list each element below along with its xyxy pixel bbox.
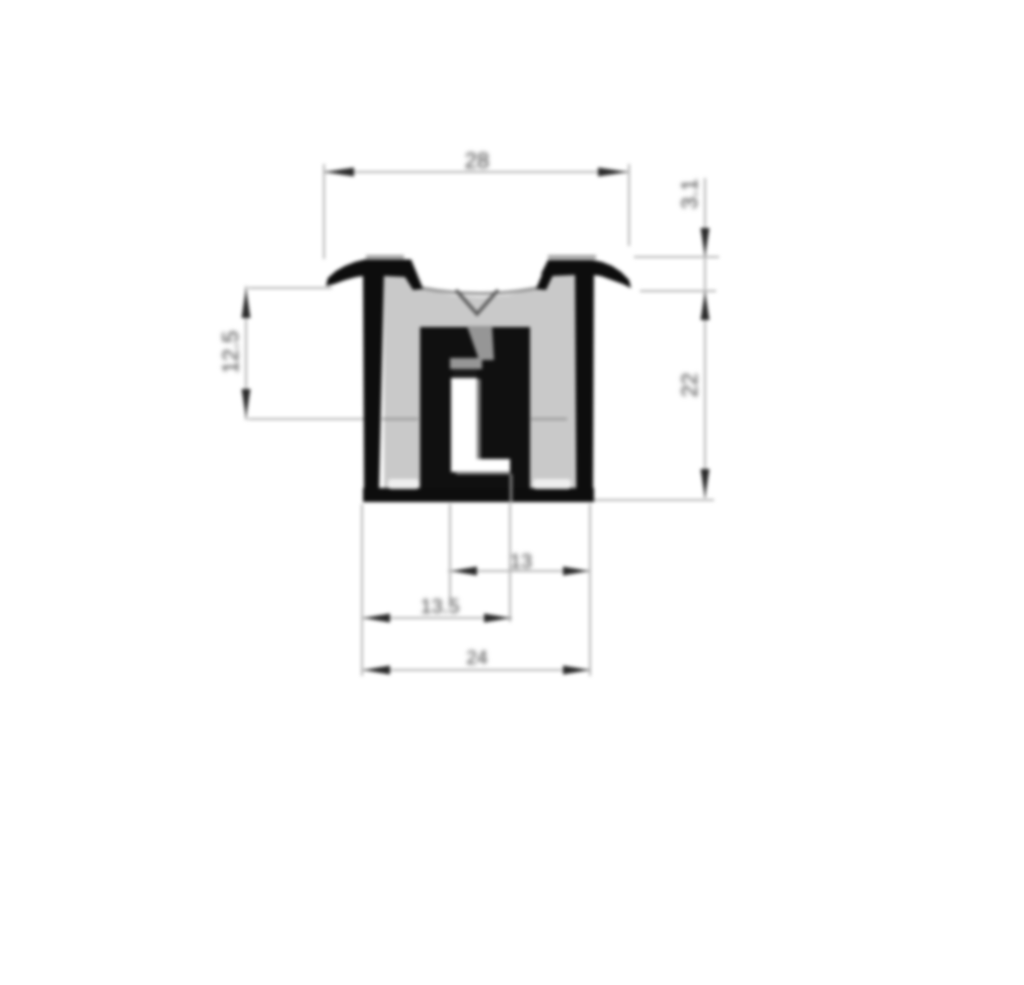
svg-text:3.1: 3.1	[677, 179, 702, 210]
svg-text:13: 13	[510, 551, 532, 573]
svg-text:12.5: 12.5	[218, 331, 243, 374]
svg-text:28: 28	[465, 148, 489, 173]
svg-text:22: 22	[677, 373, 702, 397]
svg-text:24: 24	[466, 648, 488, 669]
svg-text:13.5: 13.5	[421, 596, 460, 618]
